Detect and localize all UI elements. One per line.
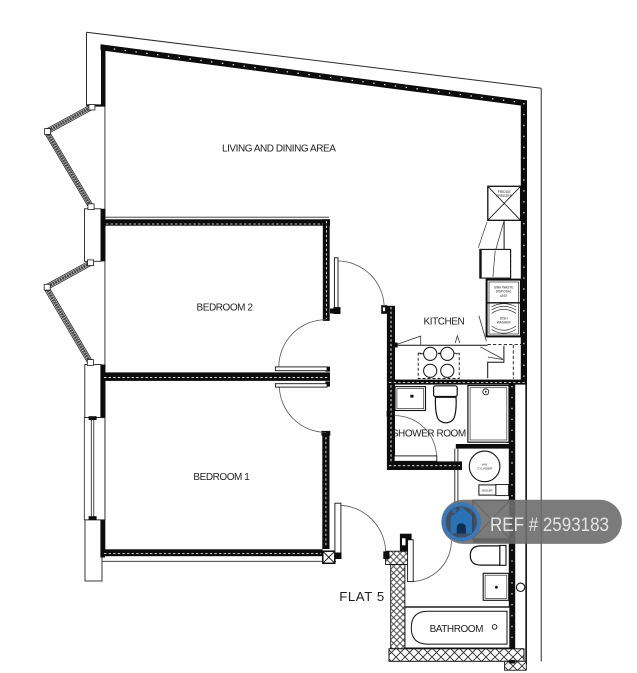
svg-text:KITCHEN: KITCHEN (424, 317, 465, 328)
svg-text:BOILER: BOILER (482, 489, 492, 493)
svg-text:SHOWER ROOM: SHOWER ROOM (392, 429, 466, 440)
svg-text:CYLINDER: CYLINDER (477, 467, 493, 471)
svg-text:BEDROOM 2: BEDROOM 2 (197, 303, 254, 314)
svg-text:BATHROOM: BATHROOM (430, 624, 484, 635)
svg-text:FLAT 5: FLAT 5 (339, 589, 385, 604)
svg-text:REF # 2593183: REF # 2593183 (490, 514, 609, 536)
svg-text:UNIT: UNIT (500, 294, 507, 298)
svg-text:BEDROOM 1: BEDROOM 1 (193, 472, 250, 483)
svg-text:LIVING AND DINING AREA: LIVING AND DINING AREA (222, 144, 336, 155)
svg-text:WASHER: WASHER (497, 321, 512, 325)
svg-text:FREEZER: FREEZER (496, 194, 512, 198)
